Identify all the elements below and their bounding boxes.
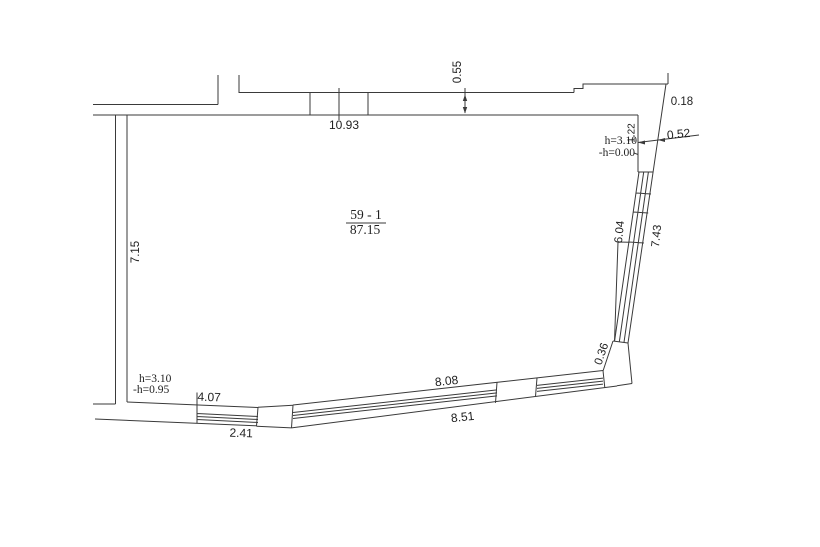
- dim-bottom-right-inner: 8.08: [434, 373, 459, 390]
- wall-lines: [93, 73, 699, 428]
- right-inner-wall-line: [638, 115, 653, 172]
- dim-right-glazing-outer: 7.43: [650, 224, 664, 248]
- arrow-left2-icon: [658, 138, 665, 142]
- floor-plan-canvas: 10.93 0.55 0.18 0.52 1.22 h=3.10 -h=0.00…: [0, 0, 820, 547]
- bottom-outer-wall-line: [95, 386, 617, 428]
- arrow-up-icon: [463, 95, 467, 102]
- pillar-a-edges: [257, 405, 294, 428]
- note-top-right-height: h=3.10: [605, 135, 638, 147]
- dim-top-width: 10.93: [329, 118, 359, 132]
- note-bottom-left-level: -h=0.95: [133, 384, 169, 396]
- room-area: 87.15: [350, 222, 381, 237]
- room-number: 59 - 1: [350, 207, 382, 222]
- right-window-band: [615, 172, 652, 342]
- dim-bottom-left-inner: 4.07: [197, 390, 221, 405]
- note-top-right-level: -h=0.00: [599, 147, 635, 159]
- neighbor-structure-top: [93, 73, 668, 105]
- dim-top-wall-thickness: 0.55: [452, 61, 464, 83]
- floor-plan-drawing: 10.93 0.55 0.18 0.52 1.22 h=3.10 -h=0.00…: [0, 0, 820, 547]
- dim-right-return: 0.52: [666, 126, 691, 142]
- arrow-down-icon: [463, 107, 467, 114]
- dim-bottom-left-outer: 2.41: [229, 426, 253, 441]
- dim-left-wall: 7.15: [130, 241, 142, 263]
- dim-right-glazing-inner: 6.04: [613, 220, 627, 244]
- arrow-left-icon: [638, 141, 645, 145]
- labels: 10.93 0.55 0.18 0.52 1.22 h=3.10 -h=0.00…: [130, 61, 693, 441]
- dim-right-offset: 0.18: [671, 96, 693, 108]
- left-wall-lines: [93, 115, 127, 404]
- dim-bottom-right-outer: 8.51: [450, 409, 475, 426]
